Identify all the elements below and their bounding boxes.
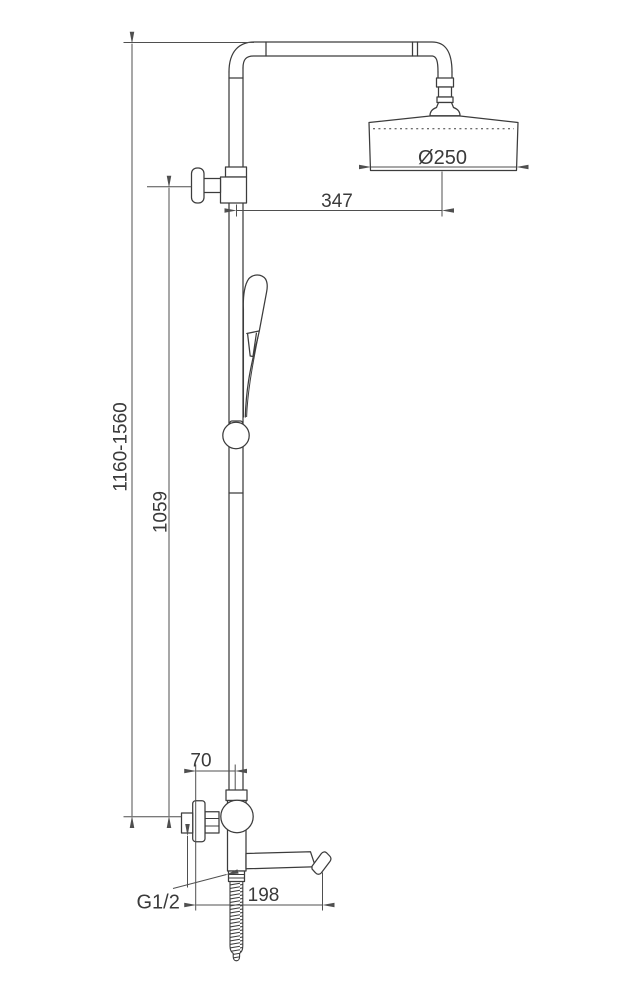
- shower-arm-pipe: [229, 42, 452, 72]
- wall-connector-hexnut: [205, 812, 219, 833]
- arm-outer-edge: [229, 42, 452, 72]
- hand-shower-head-cap: [249, 275, 266, 279]
- slider-holder: [223, 421, 249, 449]
- drop-collar-upper: [437, 78, 454, 87]
- spout-body: [246, 852, 316, 869]
- shower-fixture: [182, 42, 519, 961]
- dim-spout-projection: 198: [196, 885, 322, 906]
- head-connector-cone: [430, 103, 460, 116]
- dim-overall-height: 1160-1560: [111, 44, 133, 816]
- shower-hose: [229, 871, 245, 961]
- technical-drawing-page: 1160-1560 1059 347 Ø250 70 198: [0, 0, 642, 990]
- hand-shower-handle-line: [247, 336, 259, 417]
- head-connector: [430, 72, 460, 116]
- bracket-neck: [204, 179, 221, 193]
- wall-escutcheon-plate: [193, 801, 205, 842]
- spout-outlet-tip: [312, 852, 331, 874]
- tub-spout: [246, 852, 331, 874]
- dim-wall-offset-text: 70: [190, 750, 211, 771]
- mixer-knob: [221, 800, 253, 832]
- dim-overall-height-text: 1160-1560: [111, 402, 132, 491]
- tee-body: [221, 177, 247, 203]
- hose-corrugated-tube: [230, 882, 243, 961]
- slider-knob: [223, 422, 249, 448]
- thread-size-label: G1/2: [137, 892, 180, 914]
- arm-inner-edge: [243, 56, 438, 72]
- thread-leader-hose: [173, 875, 227, 889]
- hand-shower-face-line: [247, 331, 259, 334]
- mixer-top-collar: [226, 790, 247, 801]
- dim-head-diameter-text: Ø250: [418, 147, 467, 169]
- dim-arm-projection-text: 347: [321, 191, 353, 212]
- hose-nut: [229, 871, 245, 882]
- wall-connector-nut: [182, 813, 193, 833]
- drop-tube-segment: [439, 87, 452, 97]
- dim-riser-height-text: 1059: [151, 491, 172, 533]
- drop-collar-lower: [437, 97, 453, 103]
- wall-bracket: [192, 167, 247, 203]
- bracket-escutcheon: [192, 168, 205, 203]
- tee-flange: [226, 167, 247, 177]
- dimension-annotations: 1160-1560 1059 347 Ø250 70 198: [111, 43, 517, 914]
- mixer-valve: [182, 790, 254, 871]
- dim-riser-height: 1059: [151, 188, 172, 816]
- thread-callout: G1/2: [137, 836, 227, 914]
- hand-shower: [243, 275, 267, 417]
- dim-spout-projection-text: 198: [248, 885, 280, 906]
- dim-arm-projection: 347: [237, 191, 443, 212]
- shower-column-dimension-drawing: 1160-1560 1059 347 Ø250 70 198: [0, 0, 642, 990]
